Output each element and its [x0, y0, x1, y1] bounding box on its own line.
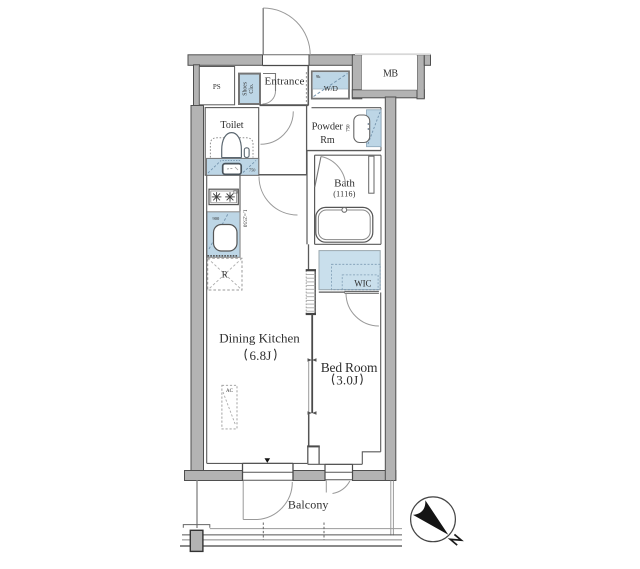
svg-text:Rm: Rm [320, 135, 335, 146]
svg-text:Dining Kitchen: Dining Kitchen [219, 330, 300, 345]
svg-text:900: 900 [213, 216, 221, 221]
svg-text:R: R [222, 270, 228, 280]
svg-text:Toilet: Toilet [220, 120, 243, 131]
svg-text:WIC: WIC [354, 278, 371, 288]
svg-text:W/D: W/D [324, 84, 339, 93]
svg-text:AC: AC [226, 389, 234, 394]
svg-text:Clo.: Clo. [249, 83, 255, 93]
svg-text:6.8J: 6.8J [249, 348, 271, 363]
svg-text:9k: 9k [316, 74, 321, 79]
svg-text:Balcony: Balcony [288, 498, 329, 512]
svg-text:(1116): (1116) [333, 189, 356, 198]
svg-text:750: 750 [347, 124, 352, 132]
svg-text:Entrance: Entrance [265, 76, 305, 88]
svg-text:Shoes: Shoes [242, 81, 248, 96]
svg-text:MB: MB [383, 68, 398, 79]
svg-text:750: 750 [249, 168, 255, 173]
svg-text:L=2550: L=2550 [242, 210, 248, 228]
svg-text:Powder: Powder [312, 122, 344, 133]
svg-text:PS: PS [213, 83, 221, 91]
svg-text:3.0J: 3.0J [336, 373, 358, 388]
